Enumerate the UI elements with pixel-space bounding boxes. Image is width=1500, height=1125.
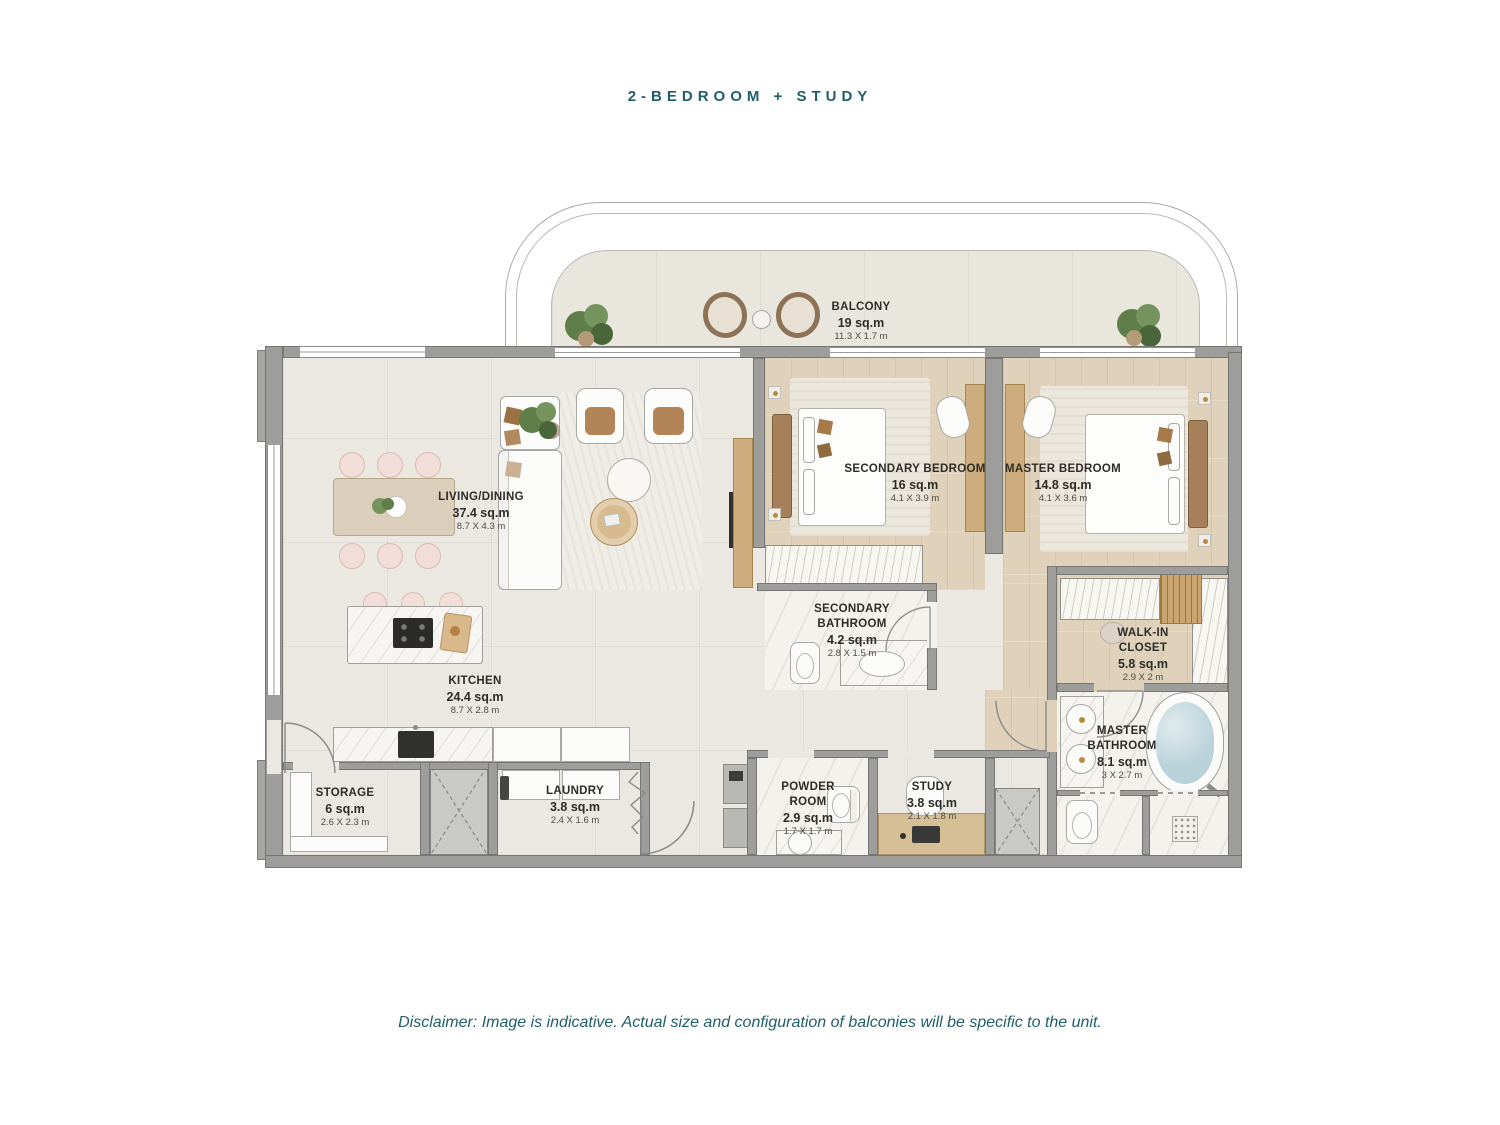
room-label-laundry: LAUNDRY3.8 sq.m2.4 X 1.6 m (515, 784, 635, 828)
desk-lamp (900, 833, 906, 839)
room-label-powder-room: POWDER ROOM2.9 sq.m1.7 X 1.7 m (773, 780, 843, 838)
door-gap (768, 750, 814, 758)
cooktop (393, 618, 433, 648)
wall-light (768, 508, 781, 521)
wall-light (768, 386, 781, 399)
dining-chair (339, 543, 365, 569)
secondary-bed-bench (772, 414, 792, 518)
wall-light (1198, 392, 1211, 405)
dining-chair (415, 452, 441, 478)
tv-screen (729, 492, 733, 548)
dining-chair (339, 452, 365, 478)
room-label-master-bathroom: MASTER BATHROOM8.1 sq.m3 X 2.7 m (1077, 724, 1167, 782)
master-suite-door (995, 700, 1047, 752)
secondary-wardrobe (765, 545, 923, 585)
kitchen-cabinet (493, 727, 561, 762)
shower-drain (1172, 816, 1198, 842)
storage-shelf (290, 836, 388, 852)
plant-icon (1108, 292, 1170, 350)
plant-icon (558, 292, 620, 350)
kitchen-faucet (413, 725, 418, 730)
secondary-desk (965, 384, 985, 532)
laptop (912, 826, 940, 843)
door-gap (888, 750, 934, 758)
throw-pillow (505, 461, 522, 478)
dining-chair (377, 452, 403, 478)
tv-console (733, 438, 753, 588)
coffee-table-marble (607, 458, 651, 502)
room-label-living-dining: LIVING/DINING37.4 sq.m8.7 X 4.3 m (406, 490, 556, 534)
bath-door-gap (1158, 790, 1198, 796)
master-desk (1005, 384, 1025, 532)
window (300, 346, 425, 358)
door-gap (1047, 700, 1057, 752)
room-label-walk-in-closet: WALK-IN CLOSET5.8 sq.m2.9 X 2 m (1103, 626, 1183, 684)
outer-wall-bottom (265, 855, 1242, 868)
wall-master-bottom (1047, 566, 1228, 575)
wall-between-bedrooms (985, 358, 1003, 554)
outer-wall-right (1228, 352, 1242, 868)
room-label-secondary-bathroom: SECONDARY BATHROOM4.2 sq.m2.8 X 1.5 m (802, 602, 902, 660)
throw-pillow (1157, 427, 1173, 443)
dining-chair (377, 543, 403, 569)
room-label-master-bedroom: MASTER BEDROOM14.8 sq.m4.1 X 3.6 m (978, 462, 1148, 506)
wall-living-bedroom (753, 358, 765, 548)
bread (450, 626, 460, 636)
balcony-sliding-door (555, 347, 740, 358)
plant-icon (512, 394, 566, 446)
closet-shelving (1160, 574, 1202, 624)
laundry-basket (500, 776, 509, 800)
closet-wardrobe-top (1060, 578, 1160, 620)
armchair-cushion (585, 407, 615, 435)
room-label-secondary-bedroom: SECONDARY BEDROOM16 sq.m4.1 X 3.9 m (830, 462, 1000, 506)
armchair (644, 388, 693, 444)
page-title: 2-BEDROOM + STUDY (0, 88, 1500, 105)
service-shaft (995, 788, 1040, 855)
balcony-sliding-door (830, 347, 985, 358)
dining-chair (415, 543, 441, 569)
wall-laundry-left (488, 762, 498, 855)
balcony-side-table (752, 310, 771, 329)
door-gap (267, 720, 281, 774)
window (267, 445, 281, 695)
master-bed-bench (1188, 420, 1208, 528)
room-label-study: STUDY3.8 sq.m2.1 X 1.8 m (877, 780, 987, 824)
throw-pillow (817, 443, 832, 458)
entrance-door (284, 722, 336, 774)
armchair-cushion (653, 407, 684, 435)
armchair (576, 388, 624, 444)
wall-powder-left (747, 758, 757, 855)
wall-bedroom-bathroom (757, 583, 937, 591)
pillow (1168, 477, 1180, 525)
throw-pillow (1157, 451, 1172, 466)
hall-cabinet (723, 808, 749, 848)
hall-door (640, 800, 695, 855)
balcony-sliding-door (1040, 347, 1195, 358)
pillow (803, 469, 815, 515)
throw-pillow (817, 419, 833, 435)
plant-icon (368, 492, 398, 520)
wall-light (1198, 534, 1211, 547)
pillow (803, 417, 815, 463)
kitchen-sink (398, 731, 434, 758)
hall-cabinet (723, 764, 749, 804)
room-label-balcony: BALCONY19 sq.m11.3 X 1.7 m (786, 300, 936, 344)
room-label-kitchen: KITCHEN24.4 sq.m8.7 X 2.8 m (400, 674, 550, 718)
wall-storage-right (420, 762, 430, 855)
service-shaft (430, 766, 488, 855)
toilet (1066, 800, 1098, 844)
disclaimer-text: Disclaimer: Image is indicative. Actual … (0, 1014, 1500, 1032)
bath-door-gap (1080, 790, 1120, 796)
room-label-storage: STORAGE6 sq.m2.6 X 2.3 m (285, 786, 405, 830)
kitchen-cabinet (561, 727, 630, 762)
bath-partition-wall (1142, 796, 1150, 855)
